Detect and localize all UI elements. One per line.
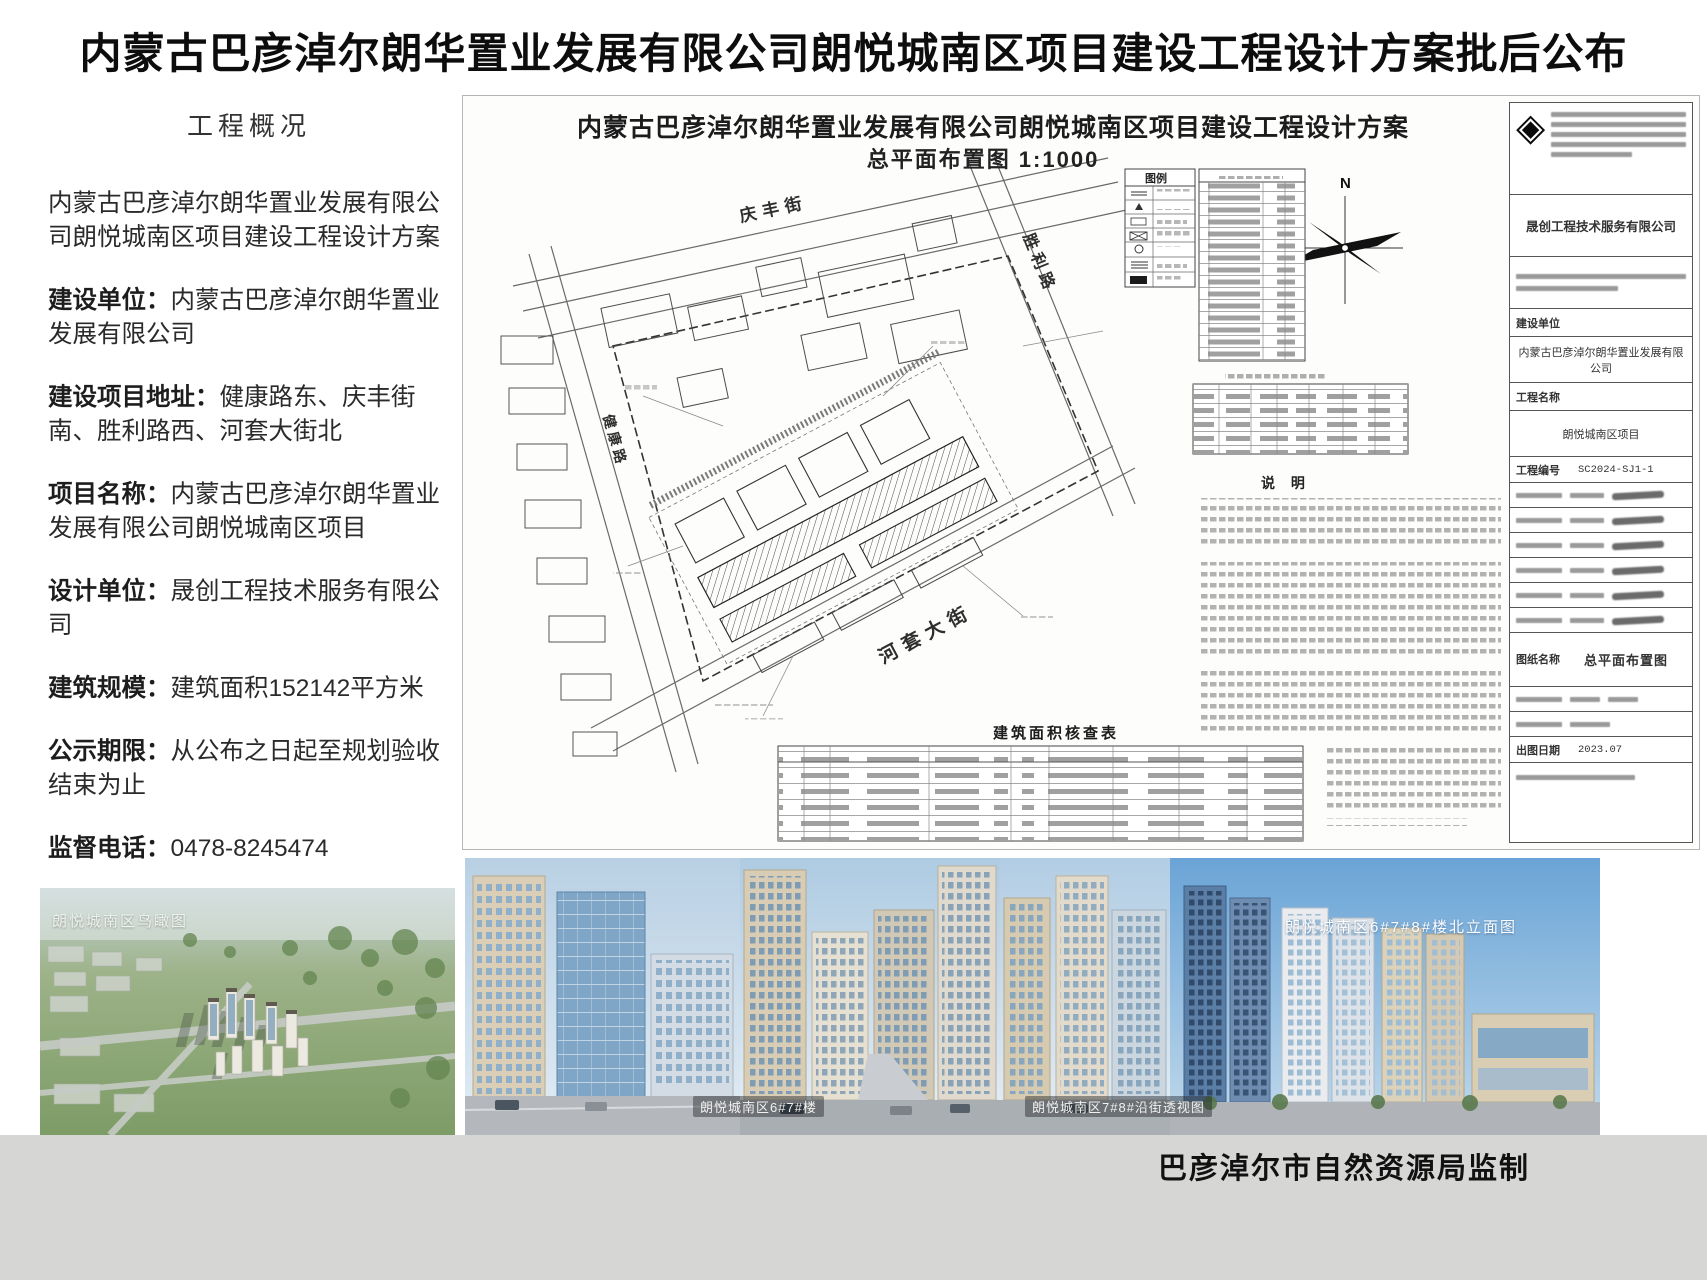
aerial-rendering: 朗悦城南区鸟瞰图 [40,888,455,1135]
street-north-label: 庆丰街 [738,192,810,226]
notes-title: 说 明 [1261,475,1311,491]
signature-row [1510,608,1692,633]
drawing-title: 内蒙古巴彦淖尔朗华置业发展有限公司朗悦城南区项目建设工程设计方案 [493,108,1493,144]
renderings-strip: 朗悦城南区6#7#楼 朗悦城南区7#8#沿街透视图 朗悦城南区6#7#8#楼北立… [465,858,1600,1135]
date-label: 出图日期 [1516,742,1574,758]
signature-row [1510,508,1692,533]
site-plan-drawing: 庆丰街 胜利路 河套大街 健康路 N 图例 [462,95,1700,850]
field-owner: 建设单位：内蒙古巴彦淖尔朗华置业发展有限公司 [48,284,450,352]
signature-row [1510,533,1692,558]
drawing-name-label: 图纸名称 [1516,653,1560,667]
field-designer-label: 设计单位： [48,578,171,605]
rendering-street-view-1 [465,858,740,1135]
field-period: 公示期限：从公布之日起至规划验收结束为止 [48,735,450,803]
street-south-label: 河套大街 [875,599,978,668]
project-no-label: 工程编号 [1516,462,1574,478]
street-west-label: 健康路 [600,412,630,468]
rendering-street-view-3 [1000,858,1170,1135]
footer-credit: 巴彦淖尔市自然资源局监制 [1158,1145,1530,1187]
owner-value: 内蒙古巴彦淖尔朗华置业发展有限公司 [1510,337,1692,383]
street-view-1-label: 朗悦城南区6#7#楼 [693,1096,824,1117]
owner-label: 建设单位 [1510,309,1692,337]
titleblock-address-block [1510,257,1692,309]
field-address-label: 建设项目地址： [48,384,220,411]
drawing-name-value: 总平面布置图 [1566,650,1686,669]
indicator-table [1199,169,1305,361]
design-firm-logo-icon: ◈ [1516,109,1545,147]
footer-band: 巴彦淖尔市自然资源局监制 [0,1135,1707,1280]
street-labels: 庆丰街 胜利路 河套大街 健康路 [600,192,1060,668]
overview-heading: 工程概况 [48,106,450,143]
north-letter: N [1340,175,1351,192]
field-address: 建设项目地址：健康路东、庆丰街南、胜利路西、河套大街北 [48,381,450,449]
proposed-buildings [644,352,1032,685]
street-east-label: 胜利路 [1019,230,1060,296]
field-phone-value: 0478-8245474 [171,835,329,862]
project-no-value: SC2024-SJ1-1 [1578,464,1686,476]
field-scale: 建筑规模：建筑面积152142平方米 [48,672,450,706]
overview-intro: 内蒙古巴彦淖尔朗华置业发展有限公司朗悦城南区项目建设工程设计方案 [48,187,450,255]
project-label: 工程名称 [1510,383,1692,411]
existing-buildings-west [501,336,617,756]
sheet-no-row [1510,712,1692,737]
field-scale-value: 建筑面积152142平方米 [171,675,424,702]
titleblock-cert-text [1551,109,1686,157]
scale-discipline-row [1510,687,1692,712]
north-elevation-label: 朗悦城南区6#7#8#楼北立面图 [1285,916,1517,937]
date-value: 2023.07 [1578,744,1686,756]
rendering-street-view-2 [740,858,1000,1135]
drawing-subtitle: 总平面布置图 1:1000 [763,142,1203,174]
design-firm-name: 晟创工程技术服务有限公司 [1510,195,1692,257]
compare-table [1193,372,1408,454]
legend-box: 图例 [1125,169,1195,287]
page-title: 内蒙古巴彦淖尔朗华置业发展有限公司朗悦城南区项目建设工程设计方案批后公布 [40,20,1667,81]
field-scale-label: 建筑规模： [48,675,171,702]
rendering-north-elevation [1170,858,1600,1135]
street-view-2-label: 朗悦城南区7#8#沿街透视图 [1025,1096,1212,1117]
field-project-name: 项目名称：内蒙古巴彦淖尔朗华置业发展有限公司朗悦城南区项目 [48,478,450,546]
signature-row [1510,583,1692,608]
drawing-titleblock: ◈ 晟创工程技术服务有限公司 建设单位 内蒙古巴彦淖尔朗华置业发展有限公司 工程… [1509,102,1693,843]
project-overview-panel: 工程概况 内蒙古巴彦淖尔朗华置业发展有限公司朗悦城南区项目建设工程设计方案 建设… [48,106,450,895]
signature-row [1510,483,1692,508]
drawing-name-row: 图纸名称 总平面布置图 [1510,633,1692,687]
signature-row [1510,558,1692,583]
field-period-label: 公示期限： [48,738,171,765]
field-owner-label: 建设单位： [48,287,171,314]
date-row: 出图日期 2023.07 [1510,737,1692,763]
field-project-name-label: 项目名称： [48,481,171,508]
area-table-title: 建筑面积核查表 [993,724,1119,742]
project-no-row: 工程编号 SC2024-SJ1-1 [1510,457,1692,483]
field-phone-label: 监督电话： [48,835,171,862]
titleblock-logo-row: ◈ [1510,103,1692,195]
field-phone: 监督电话：0478-8245474 [48,832,450,866]
titleblock-remarks [1510,763,1692,842]
aerial-label: 朗悦城南区鸟瞰图 [52,910,188,931]
project-value: 朗悦城南区项目 [1510,411,1692,457]
field-designer: 设计单位：晟创工程技术服务有限公司 [48,575,450,643]
area-table: 建筑面积核查表 [778,724,1303,841]
